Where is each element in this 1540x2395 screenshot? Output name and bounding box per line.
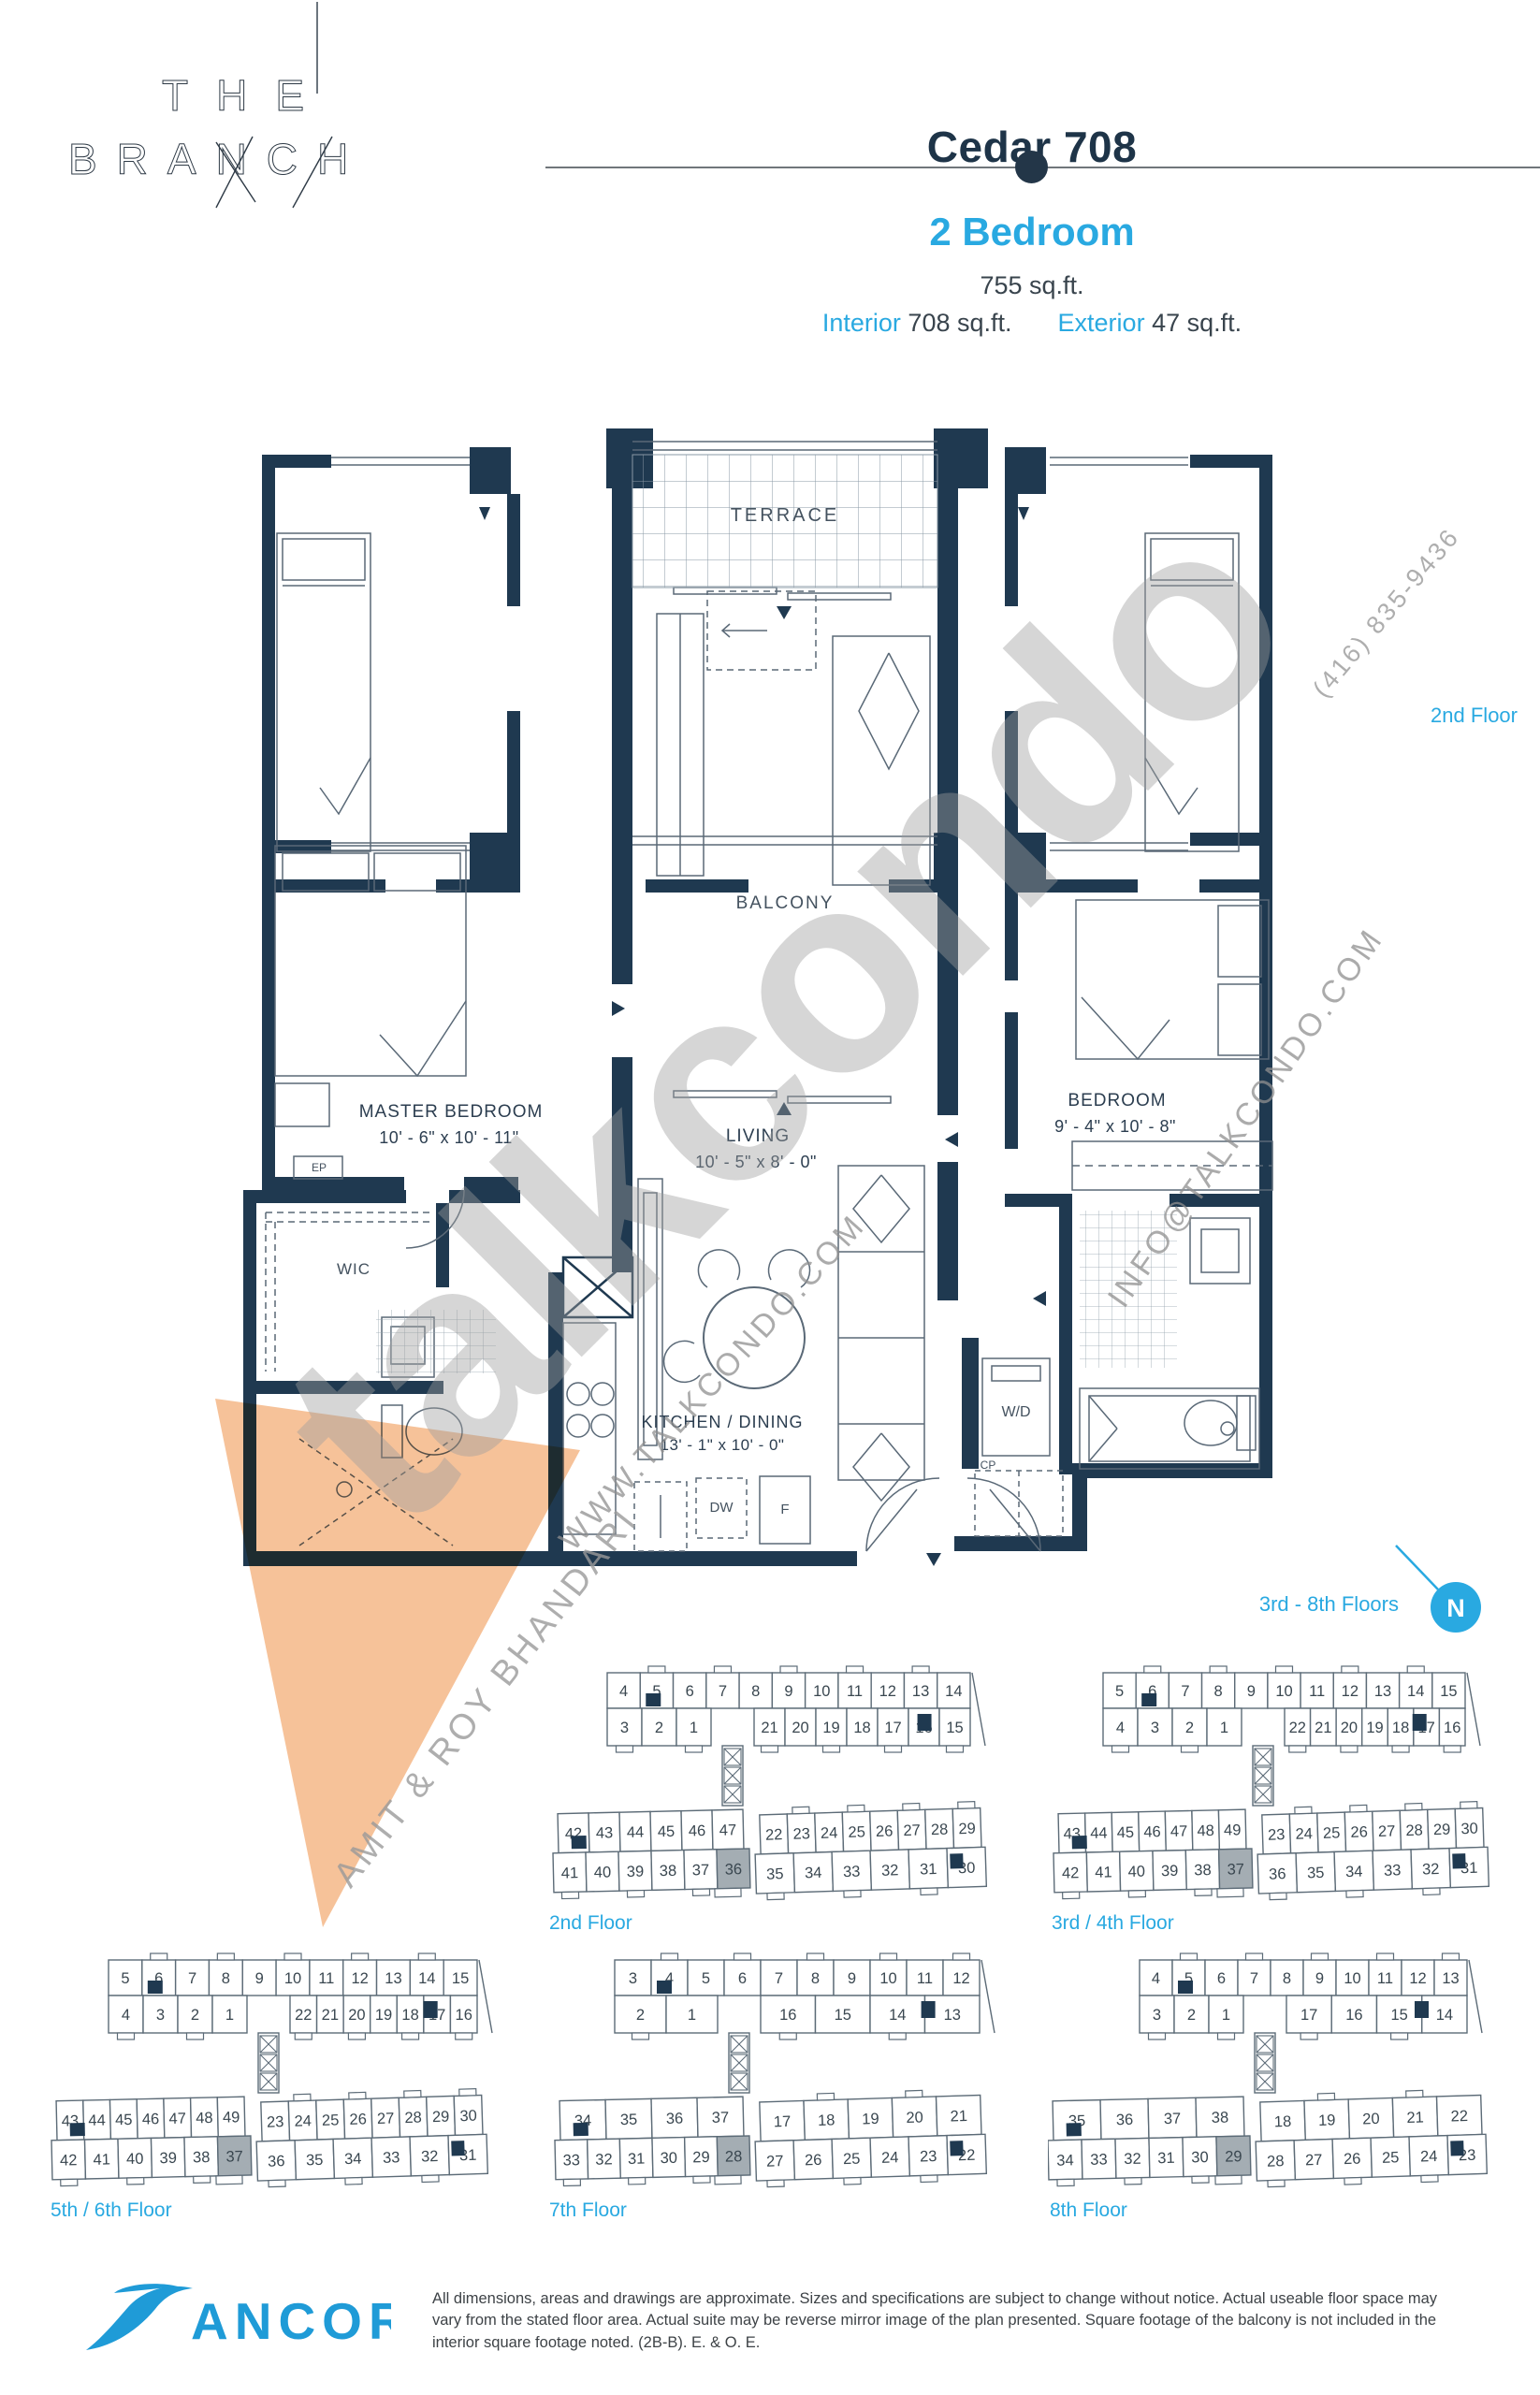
keyplan-label: 3rd / 4th Floor bbox=[1052, 1912, 1174, 1934]
keyplan-unit-number: 16 bbox=[456, 2007, 472, 2024]
keyplan-unit-number: 21 bbox=[1406, 2109, 1424, 2126]
room-label: W/D bbox=[1001, 1404, 1030, 1420]
watermark-text: AMIT & ROY BHANDARI bbox=[327, 1501, 647, 1894]
keyplan-unit-number: 49 bbox=[1224, 1822, 1242, 1838]
keyplan-unit-number: 36 bbox=[1116, 2112, 1134, 2128]
keyplan-unit bbox=[797, 1960, 834, 1996]
keyplan-unit bbox=[832, 1851, 871, 1891]
keyplan-unit-number: 28 bbox=[404, 2110, 422, 2127]
keyplan-unit bbox=[642, 1708, 676, 1746]
keyplan-unit bbox=[1369, 1960, 1402, 1996]
keyplan-unit bbox=[1331, 1996, 1376, 2033]
keyplan-unit bbox=[804, 2099, 849, 2140]
keyplan-unit-number: 47 bbox=[719, 1822, 737, 1838]
keyplan-unit-number: 13 bbox=[1442, 1970, 1459, 1987]
keyplan-unit bbox=[897, 1809, 926, 1850]
floor-tag: 2nd Floor bbox=[1431, 704, 1518, 727]
keyplan-unit bbox=[164, 2097, 192, 2138]
keyplan-label: 5th / 6th Floor bbox=[51, 2199, 172, 2221]
keyplan-unit-number: 12 bbox=[351, 1970, 368, 1987]
keyplan-unit bbox=[343, 1960, 377, 1996]
keyplan-unit-number: 46 bbox=[1143, 1823, 1161, 1840]
keyplan-unit bbox=[137, 2098, 165, 2139]
keyplan-unit bbox=[343, 1996, 370, 2033]
keyplan-unit bbox=[1414, 1708, 1440, 1746]
keyplan-unit bbox=[870, 1810, 899, 1851]
keyplan-unit-number: 13 bbox=[385, 1970, 401, 1987]
keyplan-unit bbox=[870, 1850, 909, 1890]
keyplan-unit bbox=[588, 1812, 620, 1852]
keyplan-unit-number: 30 bbox=[459, 2108, 477, 2126]
floor-tag: 3rd - 8th Floors bbox=[1259, 1592, 1399, 1616]
keyplan-unit bbox=[618, 1851, 652, 1891]
keyplan-unit-number: 18 bbox=[401, 2007, 418, 2024]
keyplan-label: 7th Floor bbox=[549, 2199, 627, 2221]
legal-disclaimer: All dimensions, areas and drawings are a… bbox=[432, 2288, 1466, 2354]
room-label: EP bbox=[312, 1161, 327, 1174]
kitchen-storage-xbox bbox=[563, 1257, 632, 1317]
keyplan-unit-number: 1 bbox=[690, 1720, 698, 1736]
keyplan-unit-number: 13 bbox=[1374, 1683, 1391, 1700]
keyplan-unit-number: 20 bbox=[792, 1720, 808, 1736]
keyplan-unit-number: 36 bbox=[268, 2153, 285, 2170]
keyplan-unit bbox=[1373, 1850, 1412, 1890]
keyplan-unit-number: 34 bbox=[1056, 2152, 1074, 2169]
keyplan-unit-number: 39 bbox=[159, 2150, 177, 2167]
keyplan-unit-number: 6 bbox=[1148, 1683, 1156, 1700]
keyplan-unit bbox=[907, 1960, 943, 1996]
keyplan-unit bbox=[1120, 1851, 1154, 1891]
keyplan-unit bbox=[424, 1996, 451, 2033]
terrace-grid bbox=[632, 455, 937, 588]
watermark-layer: talkcondoWWW.TALKCONDO.COMINFO@TALKCONDO… bbox=[0, 0, 1540, 2395]
keyplan-unit bbox=[290, 1996, 317, 2033]
keyplan-unit-number: 7 bbox=[1250, 1970, 1258, 1987]
keyplan-unit bbox=[939, 1708, 970, 1746]
keyplan-unit bbox=[450, 1996, 477, 2033]
keyplan-unit bbox=[1311, 1708, 1337, 1746]
keyplan-unit-number: 38 bbox=[660, 1863, 677, 1880]
keyplan-unit-number: 25 bbox=[848, 1823, 865, 1841]
keyplan-unit bbox=[217, 2097, 245, 2137]
keyplan-unit bbox=[1140, 1996, 1174, 2033]
keyplan-unit bbox=[178, 1996, 212, 2033]
keyplan-unit-number: 42 bbox=[60, 2152, 78, 2169]
keyplan-unit bbox=[1048, 2140, 1082, 2180]
keyplan-unit bbox=[1300, 1673, 1333, 1708]
keyplan-unit bbox=[760, 2100, 805, 2141]
keyplan-unit-number: 5 bbox=[1115, 1683, 1124, 1700]
keyplan-unit bbox=[761, 1960, 797, 1996]
keyplan-unit-number: 44 bbox=[1090, 1825, 1108, 1842]
keyplan-unit-number: 5 bbox=[652, 1683, 661, 1700]
keyplan-unit-number: 1 bbox=[688, 2007, 696, 2024]
keyplan-unit bbox=[1172, 1708, 1207, 1746]
exterior-value: 47 sq.ft. bbox=[1152, 309, 1242, 337]
keyplan-unit bbox=[838, 1673, 871, 1708]
keyplan-unit bbox=[607, 1708, 642, 1746]
keyplan-unit-number: 19 bbox=[375, 2007, 392, 2024]
keyplan-unit-number: 10 bbox=[1344, 1970, 1360, 1987]
keyplan-unit bbox=[1268, 1673, 1300, 1708]
room-label: MASTER BEDROOM bbox=[359, 1102, 544, 1122]
keyplan-unit-number: 20 bbox=[348, 2007, 365, 2024]
keyplan-unit bbox=[377, 1960, 411, 1996]
keyplan-unit-number: 35 bbox=[1068, 2112, 1086, 2129]
north-arrow-line bbox=[1396, 1546, 1438, 1589]
keyplan-unit bbox=[1053, 2100, 1101, 2141]
keyplan-unit bbox=[1422, 1996, 1467, 2033]
keyplan-unit bbox=[1111, 1812, 1140, 1852]
keyplan-unit-highlighted bbox=[217, 2136, 251, 2176]
keyplan-unit bbox=[586, 1851, 619, 1892]
keyplan-unit bbox=[650, 1811, 682, 1851]
keyplan-unit-number: 15 bbox=[946, 1720, 963, 1736]
keyplan-unit bbox=[427, 2096, 456, 2136]
keyplan-unit bbox=[1136, 1673, 1169, 1708]
keyplan-unit bbox=[761, 1996, 816, 2033]
keyplan-unit bbox=[1304, 2099, 1349, 2140]
interior-label: Interior bbox=[822, 309, 901, 337]
floorplan-walls bbox=[243, 428, 1272, 1566]
keyplan-unit-number: 17 bbox=[774, 2113, 792, 2131]
keyplan-unit-number: 27 bbox=[1305, 2152, 1323, 2170]
keyplan-unit bbox=[908, 2136, 948, 2176]
keyplan-unit bbox=[56, 2100, 84, 2141]
keyplan-unit bbox=[871, 1673, 904, 1708]
room-label: KITCHEN / DINING bbox=[641, 1413, 803, 1431]
floorplan-page: THE BRANCH Cedar 708 2 Bedroom 755 sq.ft… bbox=[0, 0, 1540, 2395]
keyplan-unit-number: 12 bbox=[879, 1683, 896, 1700]
keyplan-unit-number: 26 bbox=[876, 1822, 893, 1840]
keyplan-unit bbox=[1334, 1851, 1373, 1891]
the-branch-logo: THE BRANCH bbox=[51, 0, 472, 215]
keyplan-unit bbox=[1082, 2139, 1116, 2179]
keyplan-unit-number: 36 bbox=[725, 1861, 743, 1878]
keyplan-unit-number: 29 bbox=[692, 2149, 710, 2166]
keyplan-2nd-floor: 4567891011121314321212019181716154243444… bbox=[547, 1663, 1006, 1937]
keyplan-unit-number: 19 bbox=[1318, 2112, 1336, 2129]
keyplan-unit-number: 22 bbox=[958, 2147, 976, 2165]
keyplan-unit bbox=[652, 2138, 686, 2178]
keyplan-unit-number: 31 bbox=[1157, 2150, 1175, 2167]
keyplan-unit-number: 27 bbox=[377, 2110, 395, 2127]
keyplan-unit bbox=[448, 2134, 487, 2174]
keyplan-unit-number: 48 bbox=[1197, 1822, 1214, 1839]
keyplan-unit bbox=[1202, 1673, 1235, 1708]
keyplan-unit bbox=[676, 1708, 711, 1746]
keyplan-unit-number: 4 bbox=[619, 1683, 628, 1700]
keyplan-unit bbox=[848, 2097, 893, 2138]
header-divider-dot bbox=[1015, 151, 1048, 183]
keyplan-unit bbox=[1174, 1996, 1209, 2033]
keyplan-unit-number: 44 bbox=[627, 1824, 645, 1841]
keyplan-unit-number: 48 bbox=[196, 2110, 213, 2126]
keyplan-unit bbox=[1286, 1996, 1331, 2033]
keyplan-unit-number: 45 bbox=[1117, 1824, 1135, 1841]
keyplan-unit-number: 38 bbox=[193, 2149, 211, 2166]
keyplan-unit bbox=[370, 1996, 398, 2033]
keyplan-unit-number: 26 bbox=[349, 2111, 367, 2128]
keyplan-unit bbox=[209, 1960, 242, 1996]
keyplan-unit-number: 27 bbox=[766, 2153, 784, 2170]
keyplan-unit bbox=[832, 2138, 871, 2178]
keyplan-unit bbox=[1103, 1673, 1136, 1708]
keyplan-unit-number: 28 bbox=[725, 2148, 743, 2165]
keyplan-unit bbox=[184, 2137, 218, 2177]
keyplan-unit bbox=[85, 2139, 119, 2179]
keyplan-unit-number: 32 bbox=[595, 2151, 613, 2168]
keyplan-unit bbox=[1428, 1808, 1457, 1849]
keyplan-unit-number: 20 bbox=[1362, 2111, 1380, 2128]
keyplan-unit-number: 35 bbox=[620, 2112, 638, 2128]
unit-type-heading: 2 Bedroom bbox=[524, 210, 1540, 254]
keyplan-unit bbox=[118, 2138, 152, 2178]
keyplan-unit-number: 22 bbox=[765, 1826, 783, 1844]
keyplan-unit-number: 33 bbox=[1384, 1862, 1402, 1880]
keyplan-unit bbox=[1169, 1673, 1201, 1708]
keyplan-unit-number: 15 bbox=[452, 1970, 469, 1987]
keyplan-unit-number: 9 bbox=[784, 1683, 792, 1700]
keyplan-unit bbox=[651, 1960, 688, 1996]
keyplan-unit bbox=[937, 2095, 981, 2135]
keyplan-unit-number: 33 bbox=[562, 2152, 580, 2169]
keyplan-unit bbox=[1100, 2098, 1149, 2139]
keyplan-unit-number: 12 bbox=[1342, 1683, 1358, 1700]
keyplan-unit-number: 11 bbox=[847, 1683, 863, 1700]
keyplan-unit bbox=[333, 2138, 372, 2178]
keyplan-unit bbox=[1209, 1996, 1243, 2033]
keyplan-unit bbox=[1366, 1673, 1399, 1708]
keyplan-unit-number: 3 bbox=[629, 1970, 637, 1987]
keyplan-unit bbox=[410, 1960, 443, 1996]
keyplan-unit-number: 31 bbox=[628, 2151, 646, 2168]
keyplan-unit bbox=[615, 1960, 651, 1996]
keyplan-unit bbox=[755, 1853, 794, 1894]
keyplan-unit bbox=[755, 2141, 794, 2181]
keyplan-unit bbox=[1409, 2136, 1448, 2176]
keyplan-unit bbox=[1218, 1809, 1246, 1850]
keyplan-unit-number: 4 bbox=[1116, 1720, 1125, 1736]
keyplan-unit-number: 44 bbox=[88, 2112, 106, 2129]
room-label: TERRACE bbox=[731, 505, 840, 526]
room-label: BALCONY bbox=[736, 893, 835, 913]
keyplan-unit bbox=[371, 2097, 400, 2138]
door-markers bbox=[479, 507, 1046, 1566]
keyplan-unit bbox=[892, 2097, 937, 2137]
keyplan-unit bbox=[681, 1810, 713, 1851]
watermark-text: WWW.TALKCONDO.COM bbox=[552, 1207, 873, 1558]
keyplan-unit bbox=[1447, 2134, 1487, 2174]
keyplan-unit-number: 47 bbox=[168, 2111, 186, 2127]
watermark-text: talkcondo bbox=[216, 455, 1346, 1585]
keyplan-unit bbox=[666, 1996, 718, 2033]
keyplan-unit-number: 3 bbox=[620, 1720, 629, 1736]
keyplan-unit bbox=[640, 1673, 673, 1708]
keyplan-unit-number: 32 bbox=[1422, 1861, 1440, 1879]
keyplan-unit-number: 15 bbox=[835, 2007, 851, 2024]
keyplan-unit-number: 17 bbox=[884, 1720, 901, 1736]
keyplan-unit bbox=[1165, 1810, 1193, 1851]
keyplan-unit-number: 14 bbox=[945, 1683, 962, 1700]
keyplan-5th-6th-floor: 5678910111213141543212221201918171643444… bbox=[49, 1951, 507, 2224]
keyplan-unit-number: 49 bbox=[223, 2109, 240, 2126]
keyplan-unit-number: 21 bbox=[761, 1720, 777, 1736]
keyplan-unit bbox=[51, 2140, 85, 2180]
keyplan-unit-number: 10 bbox=[284, 1970, 301, 1987]
keyplan-unit-number: 11 bbox=[318, 1970, 334, 1987]
keyplan-unit-number: 40 bbox=[1127, 1864, 1145, 1880]
keyplan-unit bbox=[1139, 1811, 1167, 1851]
keyplan-unit-number: 4 bbox=[1152, 1970, 1160, 1987]
keyplan-unit-number: 17 bbox=[1417, 1720, 1434, 1736]
keyplan-unit bbox=[1149, 2138, 1184, 2178]
keyplan-unit-number: 9 bbox=[255, 1970, 264, 1987]
keyplan-unit bbox=[176, 1960, 210, 1996]
keyplan-unit-number: 2 bbox=[191, 2007, 199, 2024]
keyplan-unit bbox=[1192, 1810, 1220, 1851]
room-label: BEDROOM bbox=[1068, 1091, 1166, 1110]
keyplan-unit-number: 32 bbox=[1124, 2151, 1141, 2168]
keyplan-unit-number: 2 bbox=[1185, 1720, 1194, 1736]
keyplan-unit-number: 18 bbox=[1274, 2113, 1292, 2131]
keyplan-unit-number: 8 bbox=[222, 1970, 230, 1987]
keyplan-unit bbox=[109, 2099, 138, 2140]
keyplan-unit bbox=[772, 1673, 805, 1708]
keyplan-unit bbox=[952, 1807, 981, 1848]
keyplan-unit-number: 10 bbox=[813, 1683, 830, 1700]
keyplan-unit-number: 25 bbox=[1382, 2149, 1400, 2167]
keyplan-unit-number: 35 bbox=[306, 2152, 324, 2170]
keyplan-unit-number: 21 bbox=[1315, 1720, 1331, 1736]
zancor-logo: ANCOR bbox=[82, 2281, 391, 2365]
keyplan-unit bbox=[1172, 1960, 1205, 1996]
keyplan-unit bbox=[1387, 1708, 1414, 1746]
keyplan-unit-number: 13 bbox=[912, 1683, 929, 1700]
keyplan-unit-number: 20 bbox=[906, 2109, 923, 2126]
keyplan-unit-number: 39 bbox=[1161, 1863, 1179, 1880]
keyplan-unit-number: 37 bbox=[692, 1862, 710, 1879]
keyplan-unit-number: 8 bbox=[751, 1683, 760, 1700]
orange-triangle-watermark bbox=[0, 0, 1540, 2395]
keyplan-3rd-4th-floor: 5678910111213141543212221201918171643444… bbox=[1050, 1663, 1508, 1937]
keyplan-unit-number: 13 bbox=[944, 2007, 961, 2024]
keyplan-unit bbox=[317, 1996, 344, 2033]
keyplan-unit bbox=[816, 1708, 847, 1746]
keyplan-label: 8th Floor bbox=[1050, 2199, 1127, 2221]
keyplan-unit bbox=[688, 1960, 724, 1996]
keyplan-unit-number: 8 bbox=[1214, 1683, 1223, 1700]
keyplan-unit-number: 31 bbox=[459, 2147, 477, 2165]
keyplan-unit-number: 23 bbox=[267, 2113, 284, 2131]
keyplan-unit-number: 7 bbox=[1181, 1683, 1189, 1700]
keyplan-unit bbox=[1115, 2138, 1150, 2178]
keyplan-unit bbox=[1262, 1814, 1291, 1854]
keyplan-unit-number: 5 bbox=[1184, 1970, 1193, 1987]
keyplan-unit-number: 35 bbox=[766, 1865, 784, 1883]
keyplan-unit bbox=[399, 2097, 428, 2137]
keyplan-unit-number: 45 bbox=[115, 2112, 133, 2128]
keyplan-unit-number: 14 bbox=[889, 2007, 906, 2024]
keyplan-unit bbox=[793, 2139, 833, 2179]
room-label: F bbox=[780, 1502, 789, 1517]
keyplan-unit-number: 33 bbox=[1090, 2151, 1108, 2168]
keyplan-unit bbox=[1392, 2097, 1437, 2137]
keyplan-unit bbox=[816, 1996, 871, 2033]
keyplan-unit bbox=[651, 2097, 698, 2138]
keyplan-unit-number: 3 bbox=[1153, 2007, 1161, 2024]
keyplan-unit bbox=[834, 1960, 870, 1996]
ensuite-tiles bbox=[376, 1310, 496, 1373]
keyplan-unit bbox=[1148, 2097, 1197, 2138]
keyplan-unit bbox=[295, 2139, 334, 2179]
logo-line2: BRANCH bbox=[68, 135, 368, 183]
keyplan-unit bbox=[1411, 1849, 1450, 1889]
keyplan-unit-number: 36 bbox=[1269, 1865, 1286, 1883]
keyplan-unit-number: 26 bbox=[805, 2152, 822, 2170]
keyplan-unit-number: 24 bbox=[294, 2112, 312, 2130]
keyplan-unit bbox=[847, 1708, 878, 1746]
keyplan-unit-number: 2 bbox=[636, 2007, 645, 2024]
keyplan-unit-number: 34 bbox=[344, 2151, 362, 2169]
keyplan-unit bbox=[1348, 2097, 1393, 2138]
keyplan-unit bbox=[276, 1960, 310, 1996]
keyplan-unit bbox=[925, 1996, 981, 2033]
keyplan-unit-number: 25 bbox=[322, 2112, 340, 2129]
keyplan-unit-number: 17 bbox=[429, 2007, 445, 2024]
keyplan-unit-number: 19 bbox=[862, 2111, 879, 2128]
keyplan-unit bbox=[739, 1673, 772, 1708]
keyplan-unit-number: 37 bbox=[225, 2148, 243, 2165]
keyplan-unit-number: 46 bbox=[142, 2111, 160, 2127]
keyplan-unit bbox=[793, 1851, 833, 1892]
keyplan-unit-number: 31 bbox=[920, 1861, 937, 1879]
keyplan-unit-number: 10 bbox=[879, 1970, 896, 1987]
keyplan-unit bbox=[605, 2098, 652, 2139]
keyplan-unit-number: 11 bbox=[1377, 1970, 1393, 1987]
plan-annotations: 2nd Floor3rd - 8th Floors N bbox=[0, 0, 1540, 2395]
keyplan-unit bbox=[1289, 1813, 1318, 1853]
keyplan-unit bbox=[870, 1996, 925, 2033]
keyplan-unit bbox=[908, 1849, 948, 1889]
keyplan-unit bbox=[870, 2137, 909, 2177]
keyplan-unit bbox=[1058, 1813, 1086, 1853]
keyplan-unit-number: 16 bbox=[915, 1720, 932, 1736]
keyplan-unit-number: 21 bbox=[322, 2007, 339, 2024]
keyplan-unit bbox=[310, 1960, 343, 1996]
keyplan-unit bbox=[937, 1673, 970, 1708]
keyplan-unit bbox=[1294, 2139, 1333, 2179]
keyplan-unit bbox=[619, 2138, 653, 2178]
keyplan-unit-number: 38 bbox=[1212, 2110, 1229, 2126]
keyplan-unit bbox=[815, 1812, 844, 1852]
north-compass-icon bbox=[1431, 1582, 1481, 1633]
keyplan-unit-highlighted bbox=[1219, 1849, 1253, 1889]
keyplan-unit-number: 18 bbox=[1392, 1720, 1409, 1736]
keyplan-unit-number: 18 bbox=[853, 1720, 870, 1736]
keyplan-unit bbox=[443, 1960, 477, 1996]
keyplan-unit bbox=[925, 1808, 954, 1849]
room-label: LIVING bbox=[726, 1126, 790, 1146]
keyplan-unit-number: 7 bbox=[188, 1970, 196, 1987]
keyplan-unit bbox=[1183, 2137, 1217, 2177]
keyplan-unit bbox=[1449, 1847, 1489, 1887]
keyplan-unit-number: 23 bbox=[920, 2148, 937, 2166]
keyplan-unit bbox=[1238, 1960, 1271, 1996]
keyplan-unit bbox=[1432, 1673, 1465, 1708]
keyplan-unit bbox=[559, 2099, 606, 2140]
keyplan-unit-number: 5 bbox=[121, 1970, 129, 1987]
